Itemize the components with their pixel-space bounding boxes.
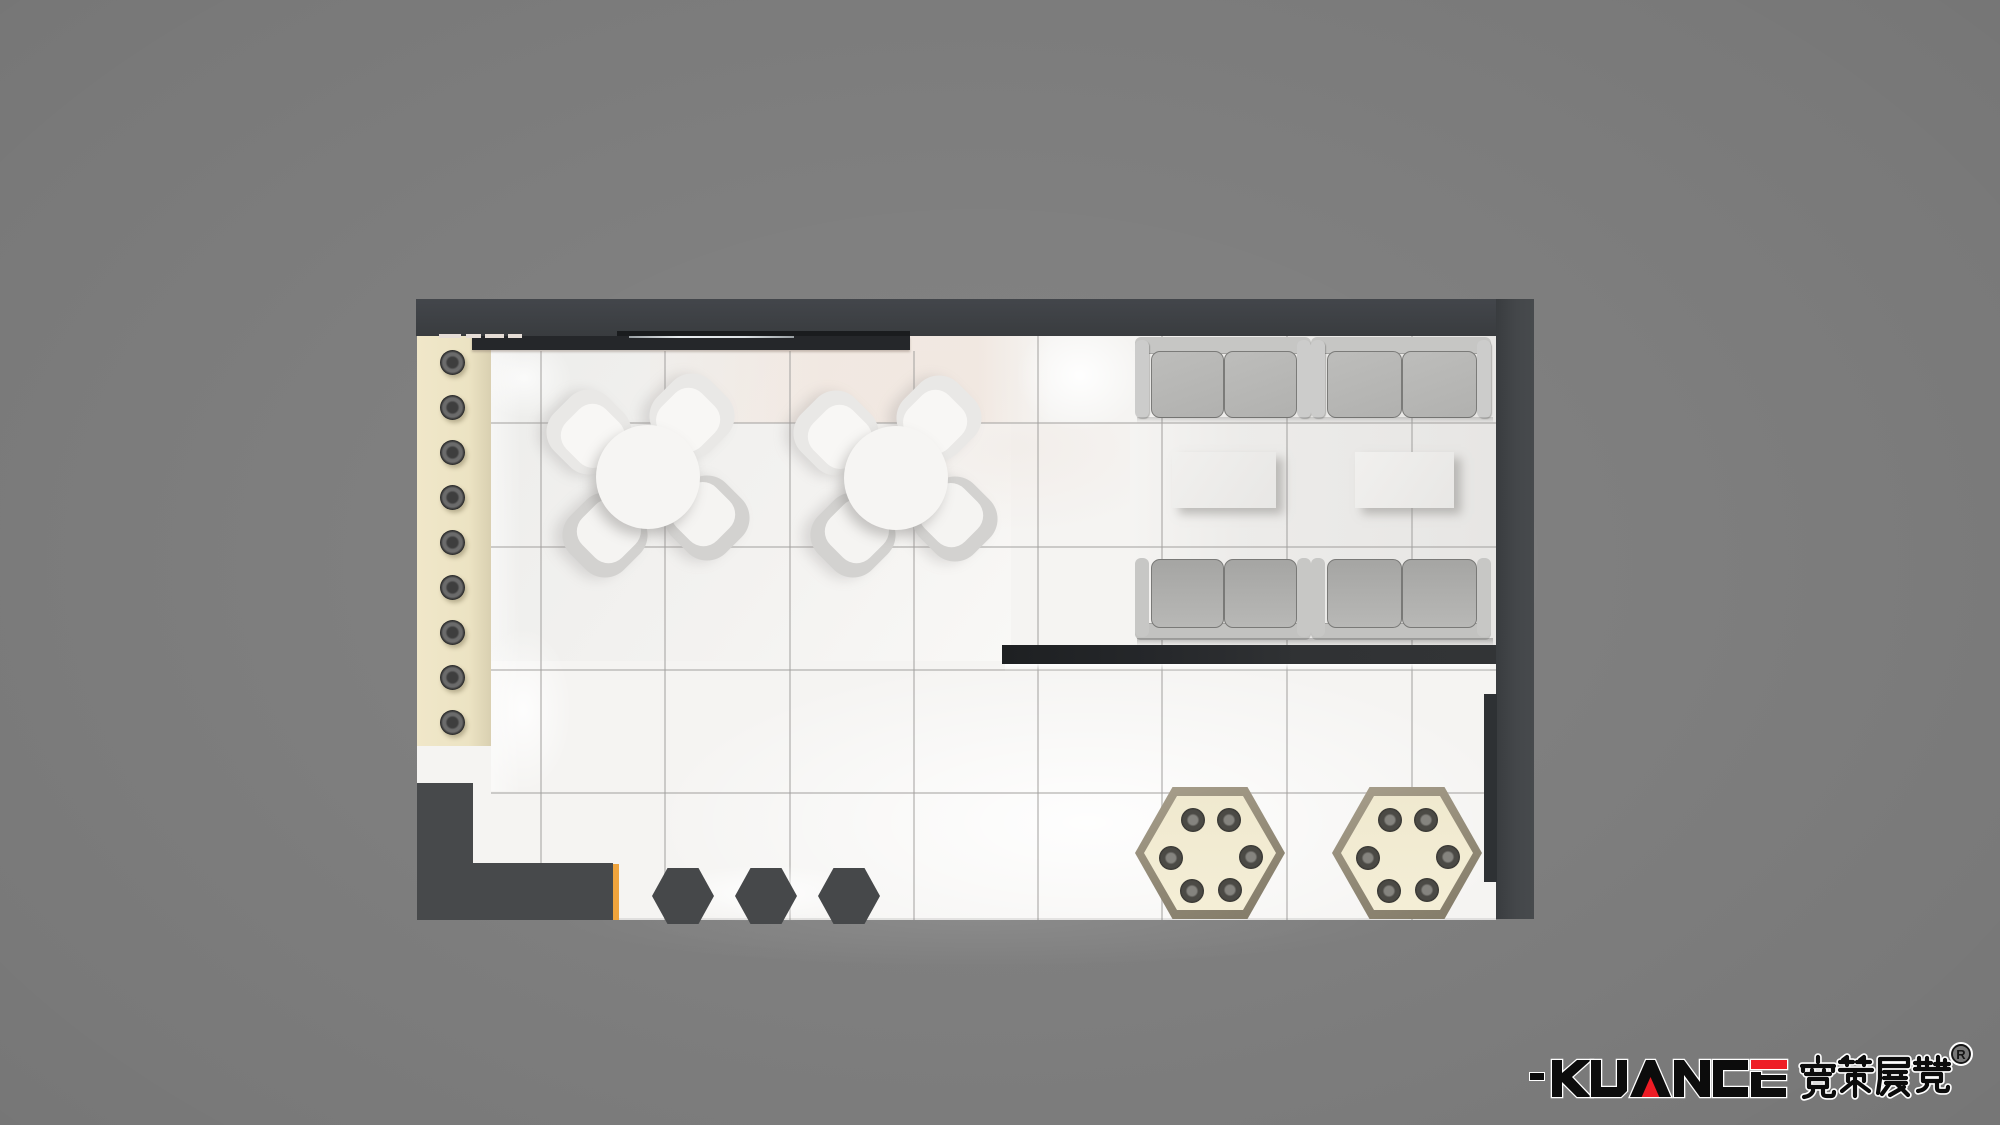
svg-text:R: R	[1956, 1047, 1966, 1062]
